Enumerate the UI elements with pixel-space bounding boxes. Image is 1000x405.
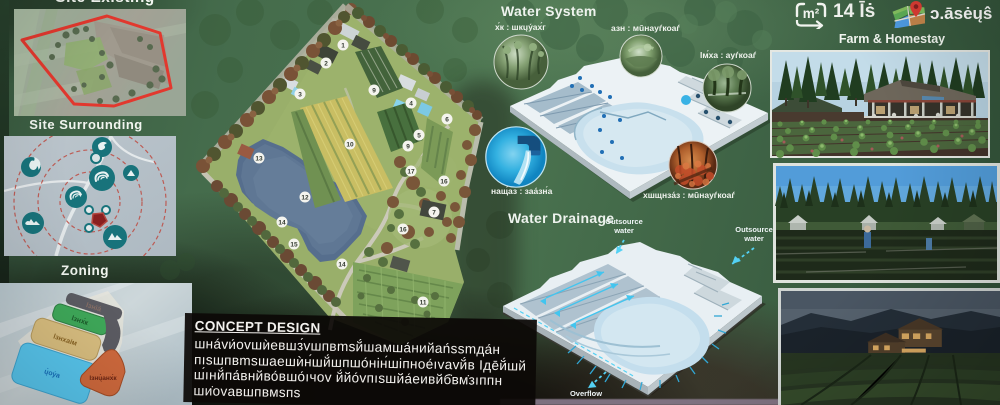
svg-text:7: 7 (432, 210, 436, 217)
svg-text:10: 10 (346, 142, 354, 149)
svg-text:15: 15 (290, 242, 298, 249)
svg-text:m²: m² (803, 6, 820, 21)
svg-text:16: 16 (399, 227, 407, 234)
svg-text:13: 13 (255, 156, 263, 163)
svg-text:9: 9 (406, 144, 410, 151)
svg-text:5: 5 (417, 133, 421, 140)
svg-text:Outsource: Outsource (605, 217, 643, 226)
svg-text:Outsource: Outsource (735, 225, 773, 234)
svg-text:4: 4 (409, 101, 413, 108)
svg-text:6: 6 (445, 117, 449, 124)
svg-text:2: 2 (324, 61, 328, 68)
svg-text:Overflow: Overflow (570, 389, 602, 398)
svg-text:3: 3 (298, 92, 302, 99)
svg-text:1: 1 (341, 43, 345, 50)
svg-text:14: 14 (278, 220, 286, 227)
svg-text:water: water (613, 226, 634, 235)
svg-text:16: 16 (440, 179, 448, 186)
svg-text:9: 9 (372, 88, 376, 95)
svg-text:17: 17 (407, 169, 415, 176)
svg-text:14: 14 (338, 262, 346, 269)
svg-text:Water Drainage: Water Drainage (508, 210, 614, 226)
svg-text:Water System: Water System (501, 3, 597, 19)
svg-text:12: 12 (301, 195, 309, 202)
svg-text:lзнų́анх́к: lзнų́анх́к (89, 373, 117, 382)
svg-text:water: water (743, 234, 764, 243)
svg-text:11: 11 (420, 300, 427, 307)
